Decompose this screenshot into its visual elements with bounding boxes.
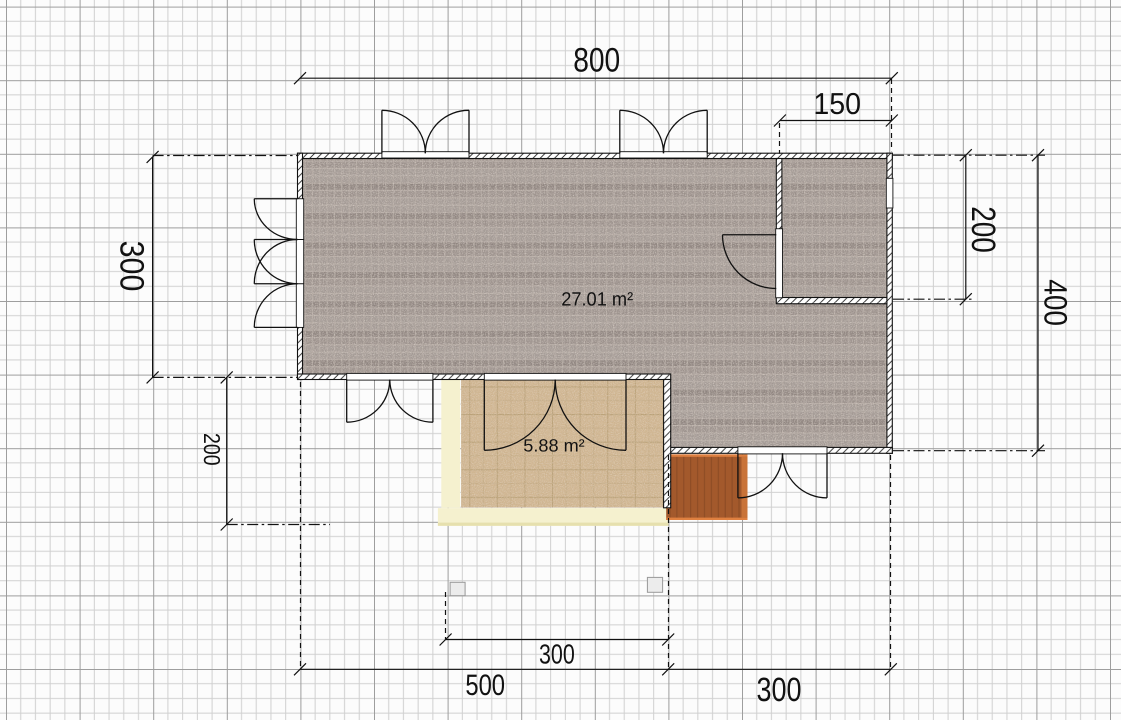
svg-text:200: 200	[199, 433, 225, 466]
svg-text:150: 150	[813, 88, 861, 121]
svg-text:300: 300	[757, 671, 802, 709]
svg-text:5.88 m²: 5.88 m²	[523, 436, 585, 456]
svg-text:400: 400	[1038, 279, 1074, 326]
svg-text:200: 200	[964, 206, 1002, 253]
svg-text:800: 800	[573, 42, 620, 80]
svg-text:500: 500	[465, 669, 505, 702]
svg-text:27.01 m²: 27.01 m²	[561, 290, 634, 311]
svg-text:300: 300	[113, 241, 151, 292]
svg-text:300: 300	[539, 638, 575, 669]
